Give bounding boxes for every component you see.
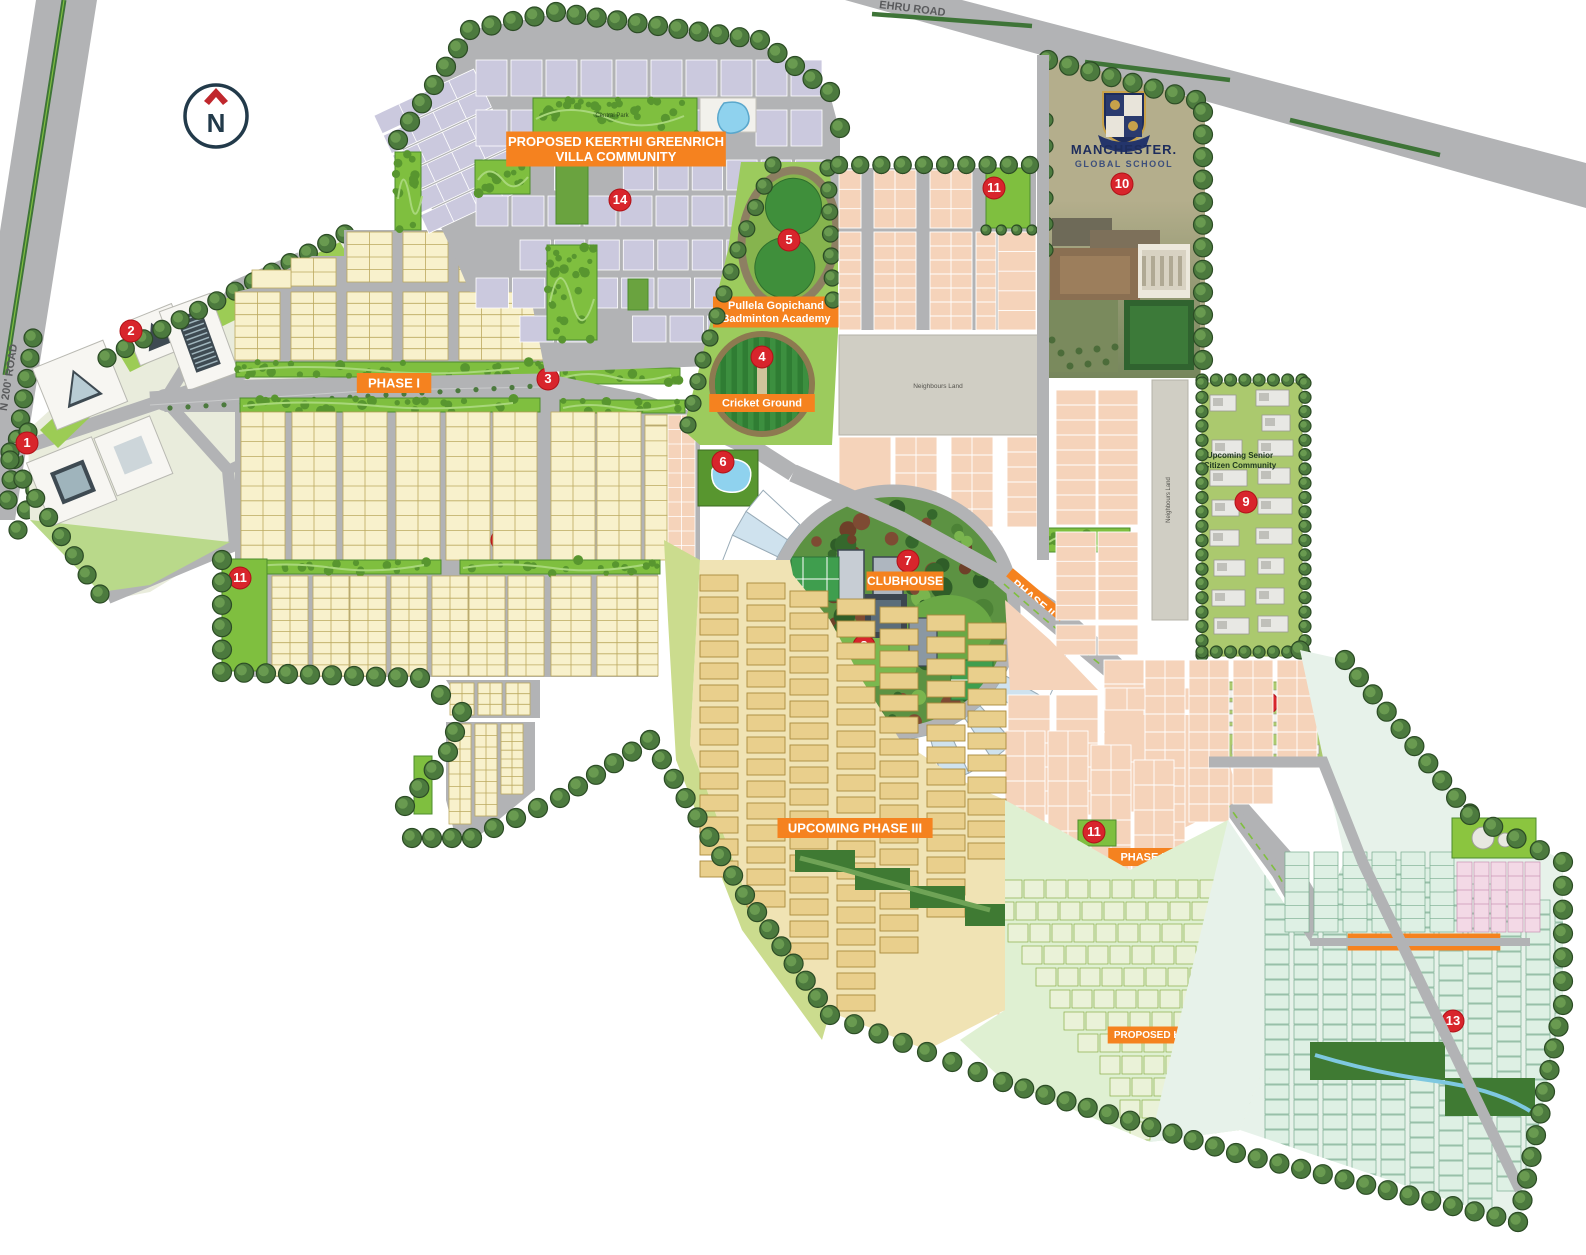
svg-text:Cricket Ground: Cricket Ground <box>722 398 802 410</box>
svg-text:Central Park: Central Park <box>595 113 629 119</box>
svg-text:11: 11 <box>1087 824 1101 839</box>
svg-text:3: 3 <box>544 371 551 386</box>
svg-text:13: 13 <box>1446 1013 1460 1028</box>
svg-text:7: 7 <box>904 553 911 568</box>
svg-text:9: 9 <box>1242 494 1249 509</box>
svg-text:Neighbours Land: Neighbours Land <box>913 383 963 390</box>
svg-text:1: 1 <box>23 435 30 450</box>
svg-text:N: N <box>207 108 226 138</box>
svg-text:VILLA COMMUNITY: VILLA COMMUNITY <box>556 149 677 164</box>
svg-text:CLUBHOUSE: CLUBHOUSE <box>867 574 943 588</box>
svg-text:11: 11 <box>987 180 1001 195</box>
svg-text:UPCOMING PHASE III: UPCOMING PHASE III <box>788 821 922 836</box>
svg-text:14: 14 <box>613 192 628 207</box>
svg-text:Badminton Academy: Badminton Academy <box>721 313 831 325</box>
svg-text:MANCHESTER.: MANCHESTER. <box>1071 142 1177 157</box>
svg-text:Citizen Community: Citizen Community <box>1204 461 1277 470</box>
svg-text:10: 10 <box>1115 176 1129 191</box>
svg-text:PHASE I: PHASE I <box>368 376 420 391</box>
svg-text:6: 6 <box>719 454 726 469</box>
svg-text:5: 5 <box>785 232 792 247</box>
svg-text:PROPOSED KEERTHI GREENRICH: PROPOSED KEERTHI GREENRICH <box>508 134 724 149</box>
svg-text:GLOBAL SCHOOL: GLOBAL SCHOOL <box>1075 159 1173 169</box>
svg-text:11: 11 <box>233 570 247 585</box>
svg-text:4: 4 <box>758 349 766 364</box>
svg-text:2: 2 <box>127 323 134 338</box>
svg-text:Neighbours Land: Neighbours Land <box>1166 477 1172 523</box>
svg-text:Pullela Gopichand: Pullela Gopichand <box>728 300 824 312</box>
svg-text:Upcoming Senior: Upcoming Senior <box>1207 451 1273 460</box>
